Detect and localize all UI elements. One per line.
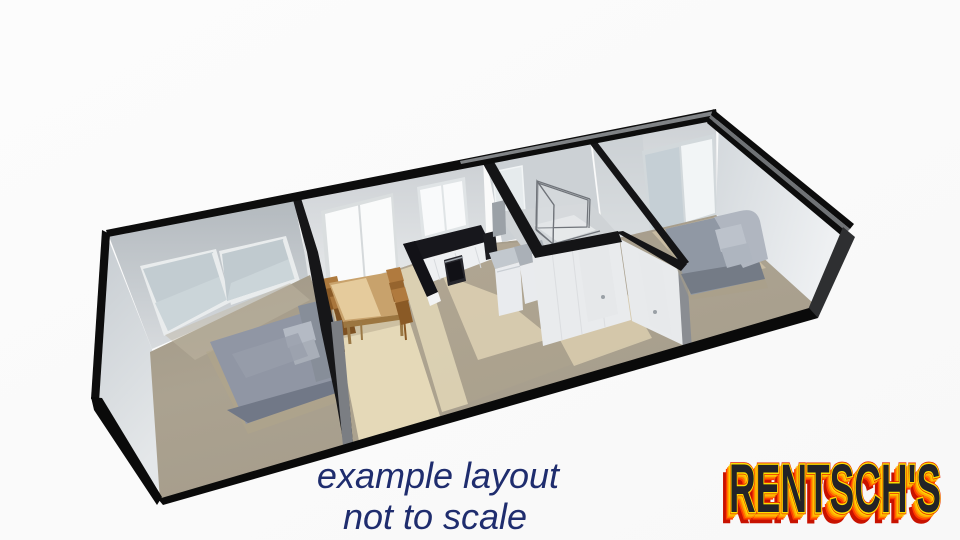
- svg-text:RENTSCH'S: RENTSCH'S: [729, 450, 941, 527]
- svg-text:example layout: example layout: [317, 455, 561, 496]
- svg-text:not to scale: not to scale: [343, 496, 527, 537]
